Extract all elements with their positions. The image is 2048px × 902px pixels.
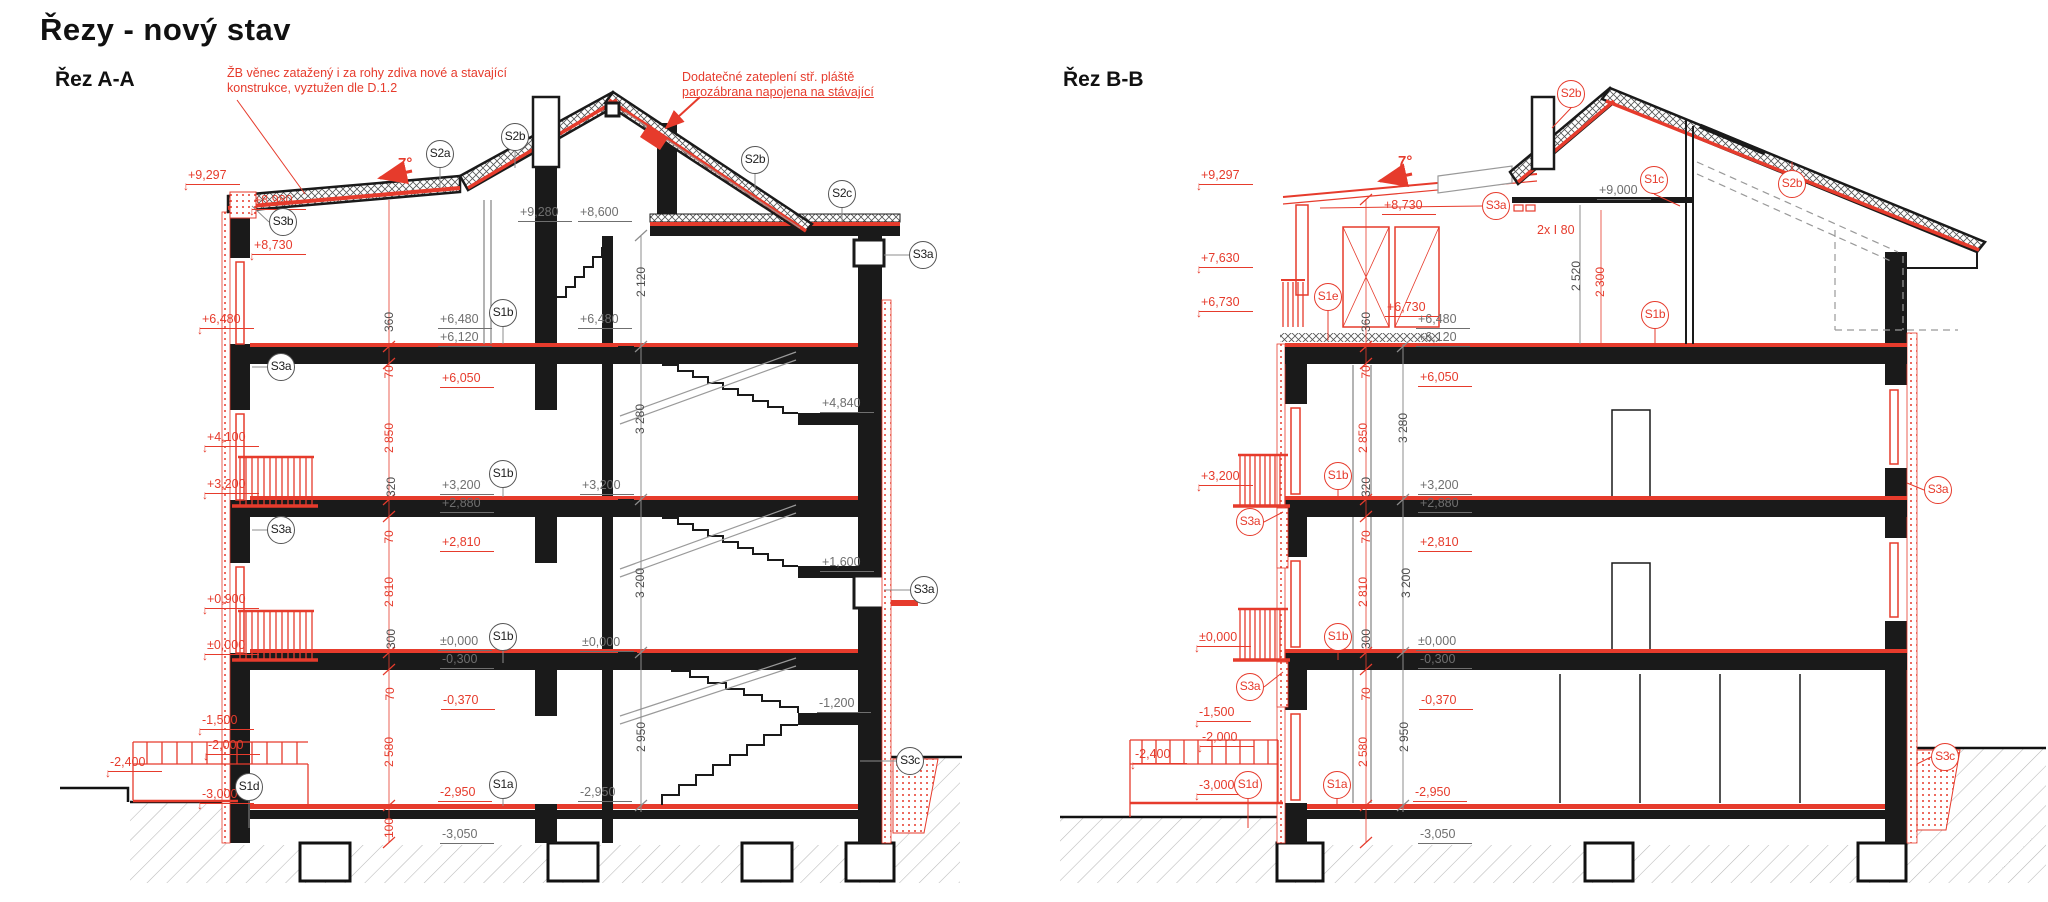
section-marker-s1d: S1d [235,773,263,801]
dimension-label: 70 [383,687,397,700]
level-label: +6,480 [200,313,254,329]
section-marker-s3a: S3a [267,353,295,381]
section-marker-s3a: S3a [1236,508,1264,536]
dimension-label: 300 [1359,629,1373,649]
level-label: +0,900 [205,593,259,609]
section-marker-s2c: S2c [828,180,856,208]
dimension-label: 100 [382,818,396,838]
dimension-label: 320 [1359,477,1373,497]
section-marker-s1d: S1d [1234,771,1262,799]
section-marker-s1b: S1b [489,623,517,651]
level-label: ±0,000 [438,635,492,651]
level-label: +2,810 [1418,536,1472,552]
section-marker-s1b: S1b [1641,301,1669,329]
level-label: -2,950 [1413,786,1467,802]
level-label: +6,480 [438,313,492,329]
annotation-note: ŽB věnec zatažený i za rohy zdiva nové a… [227,66,507,96]
section-marker-s3b: S3b [269,208,297,236]
section-marker-s3a: S3a [1924,476,1952,504]
dimension-label: 2 950 [1397,722,1411,752]
level-label: -1,200 [817,697,871,713]
dimension-label: 360 [382,312,396,332]
dimension-label: 3 200 [1399,568,1413,598]
dimension-label: 2 950 [634,722,648,752]
dimension-label: 2 850 [1356,423,1370,453]
section-marker-s1b: S1b [489,299,517,327]
annotation-line: ŽB věnec zatažený i za rohy zdiva nové a… [227,66,507,81]
dimension-label: 2 120 [634,267,648,297]
section-marker-s1b: S1b [1324,462,1352,490]
dimension-label: 70 [1359,687,1373,700]
dimension-label: 3 280 [1396,413,1410,443]
level-label: +6,120 [438,331,492,347]
level-label: -1,500 [1197,706,1251,722]
dimension-label: 3 280 [633,404,647,434]
section-marker-s2b: S2b [501,123,529,151]
dimension-label: 300 [384,629,398,649]
level-label: +4,100 [205,431,259,447]
level-label: +6,480 [578,313,632,329]
dimension-label: 320 [384,477,398,497]
level-label: +2,880 [440,497,494,513]
section-marker-s3a: S3a [1236,673,1264,701]
section-marker-s1a: S1a [489,771,517,799]
dimension-label: 70 [1359,365,1373,378]
dimension-label: 2 850 [382,423,396,453]
level-label: -3,050 [440,828,494,844]
level-label: +8,600 [578,206,632,222]
section-marker-s2b: S2b [1557,80,1585,108]
level-label: -2,950 [578,786,632,802]
level-label: -2,950 [438,786,492,802]
level-label: ±0,000 [205,639,259,655]
section-marker-s1b: S1b [1324,623,1352,651]
level-label: -3,050 [1418,828,1472,844]
annotation-line: Dodatečné zateplení stř. pláště [682,70,874,85]
label-layer: +9,297+8,980+8,730+6,480+4,100+3,200+0,9… [0,0,2048,902]
level-label: +8,730 [252,239,306,255]
level-label: -0,300 [440,653,494,669]
level-label: +3,200 [1418,479,1472,495]
level-label: +3,200 [580,479,634,495]
level-label: +3,200 [440,479,494,495]
level-label: -2,000 [1200,731,1254,747]
level-label: ±0,000 [1416,635,1470,651]
level-label: ±0,000 [580,636,634,652]
level-label: +7,630 [1199,252,1253,268]
section-marker-s2a: S2a [426,140,454,168]
section-marker-s3c: S3c [896,747,924,775]
section-marker-s2b: S2b [741,146,769,174]
level-label: +2,880 [1418,497,1472,513]
level-label: +6,730 [1199,296,1253,312]
dimension-label: 70 [382,530,396,543]
level-label: +9,297 [1199,169,1253,185]
level-label: +4,840 [820,397,874,413]
level-label: +6,120 [1416,331,1470,347]
level-label: +6,480 [1416,313,1470,329]
level-label: +8,730 [1382,199,1436,215]
section-marker-s1e: S1e [1314,283,1342,311]
dimension-label: 3 200 [633,568,647,598]
level-label: +9,297 [186,169,240,185]
annotation-note: Dodatečné zateplení stř. pláštěparozábra… [682,70,874,100]
roof-slope-label: 7° [1398,153,1412,170]
level-label: -0,370 [441,694,495,710]
level-label: +6,050 [1418,371,1472,387]
level-label: 2x I 80 [1535,224,1589,239]
level-label: +6,050 [440,372,494,388]
level-label: -2,400 [1133,748,1187,764]
dimension-label: 2 580 [1356,737,1370,767]
section-marker-s3a: S3a [267,516,295,544]
section-marker-s1a: S1a [1323,771,1351,799]
level-label: +3,200 [205,478,259,494]
dimension-label: 70 [1359,530,1373,543]
section-marker-s3a: S3a [910,576,938,604]
dimension-label: 2 810 [1356,577,1370,607]
dimension-label: 2 300 [1593,267,1607,297]
level-label: -0,370 [1419,694,1473,710]
dimension-label: 70 [382,365,396,378]
dimension-label: 2 520 [1569,261,1583,291]
annotation-line: konstrukce, vyztužen dle D.1.2 [227,81,507,96]
drawing-sheet: Řezy - nový stav Řez A-A Řez B-B [0,0,2048,902]
roof-slope-label: 7° [398,155,412,172]
dimension-label: 2 580 [382,737,396,767]
level-label: -2,400 [108,756,162,772]
section-marker-s1c: S1c [1640,166,1668,194]
level-label: +3,200 [1199,470,1253,486]
annotation-line: parozábrana napojena na stávající [682,85,874,100]
dimension-label: 2 810 [382,577,396,607]
level-label: +2,810 [440,536,494,552]
dimension-label: 360 [1359,312,1373,332]
section-marker-s1b: S1b [489,460,517,488]
level-label: -1,500 [200,714,254,730]
level-label: +9,280 [518,206,572,222]
section-marker-s3c: S3c [1931,743,1959,771]
level-label: -2,000 [206,739,260,755]
level-label: -0,300 [1418,653,1472,669]
level-label: +1,600 [820,556,874,572]
level-label: ±0,000 [1197,631,1251,647]
section-marker-s3a: S3a [909,241,937,269]
section-marker-s3a: S3a [1482,192,1510,220]
section-marker-s2b: S2b [1778,170,1806,198]
